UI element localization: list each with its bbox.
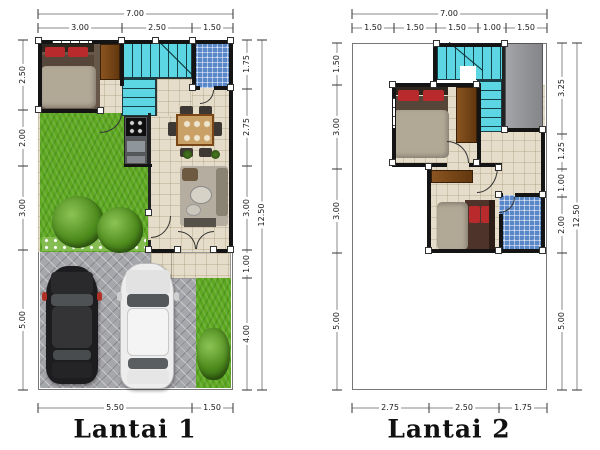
wall <box>427 165 431 253</box>
dim-label: 1.00 <box>243 253 251 275</box>
plan2-wardrobe-2 <box>431 170 473 183</box>
dim-label: 4.00 <box>243 323 251 345</box>
car-trunk <box>127 370 169 384</box>
plan2-stairs-opening <box>460 66 476 82</box>
dim-label: 1.25 <box>558 140 566 162</box>
column-marker <box>430 81 437 88</box>
plan1-plant-1 <box>183 150 192 159</box>
plan1-fridge <box>126 155 146 164</box>
dim-label: 2.00 <box>558 214 566 236</box>
column-marker <box>227 246 234 253</box>
dim-label: 3.25 <box>558 77 566 99</box>
dim-label: 1.50 <box>201 404 223 412</box>
plan1-garden-tree-2 <box>97 207 143 253</box>
column-marker <box>35 37 42 44</box>
plan1-bed-pillow-1 <box>45 47 65 57</box>
plan2-open-area <box>392 167 428 253</box>
column-marker <box>425 247 432 254</box>
column-marker <box>433 40 440 47</box>
plan1-stairs-side-run <box>122 78 156 116</box>
wall <box>192 40 196 88</box>
car-mirror-left <box>42 292 47 301</box>
column-marker <box>35 106 42 113</box>
dim-label: 3.00 <box>19 197 27 219</box>
column-marker <box>227 84 234 91</box>
dim-label: 1.50 <box>201 24 223 32</box>
car-rear-window <box>128 358 168 369</box>
plan2-bed2-pillow-2 <box>423 90 444 101</box>
plan1-car-white <box>120 263 174 389</box>
column-marker <box>539 191 546 198</box>
wall <box>433 47 437 83</box>
dim-label: 2.00 <box>19 127 27 149</box>
dim-label: 1.00 <box>558 172 566 194</box>
plan2-wardrobe-master <box>456 87 477 143</box>
wall <box>38 44 42 113</box>
column-marker <box>389 81 396 88</box>
dim-label: 2.50 <box>19 64 27 86</box>
column-marker <box>501 40 508 47</box>
column-marker <box>152 37 159 44</box>
dim-label: 1.75 <box>243 53 251 75</box>
wall <box>229 44 233 253</box>
plan1-plant-2 <box>211 150 220 159</box>
car-roof <box>127 308 169 356</box>
column-marker <box>174 246 181 253</box>
plan1-stove <box>126 118 146 136</box>
wall <box>427 249 545 253</box>
column-marker <box>539 247 546 254</box>
column-marker <box>473 159 480 166</box>
column-marker <box>495 247 502 254</box>
wall <box>392 163 447 167</box>
dim-label: 1.50 <box>333 53 341 75</box>
car-hood <box>126 270 170 294</box>
plan1-title: Lantai 1 <box>73 415 196 444</box>
wall <box>124 164 152 167</box>
dim-label: 7.00 <box>438 10 460 18</box>
plan1-car-black <box>46 266 98 384</box>
car-mirror-right <box>174 292 179 301</box>
wall <box>499 214 503 249</box>
column-marker <box>425 163 432 170</box>
dim-label: 12.50 <box>258 202 266 229</box>
dim-label: 5.00 <box>333 310 341 332</box>
plan1-bedroom-window <box>52 41 92 43</box>
plan1-armchair <box>182 168 198 181</box>
plan2-title: Lantai 2 <box>387 415 510 444</box>
dim-label: 12.50 <box>573 203 581 230</box>
plan2-roof-slab <box>505 43 543 130</box>
dim-label: 2.75 <box>243 116 251 138</box>
car-windshield <box>51 294 93 306</box>
plan1-wardrobe <box>100 44 120 80</box>
dim-label: 1.50 <box>404 24 426 32</box>
plan1-bathroom <box>192 42 233 88</box>
dim-label: 1.50 <box>446 24 468 32</box>
wall <box>433 43 505 47</box>
car-windshield <box>127 294 169 307</box>
dim-label: 5.00 <box>558 310 566 332</box>
plan2-bed3-blanket <box>437 202 468 250</box>
wall <box>120 40 124 86</box>
plan1-porch-step-line <box>171 252 172 279</box>
car-roof <box>52 306 92 348</box>
car-mirror-right <box>97 292 102 301</box>
plan2-bed3-pillow-1 <box>469 206 480 223</box>
column-marker <box>495 164 502 171</box>
column-marker <box>389 159 396 166</box>
column-marker <box>145 246 152 253</box>
wall <box>148 113 151 212</box>
plan1-coffee-table <box>190 186 212 204</box>
wall <box>477 83 481 167</box>
car-mirror-left <box>117 292 122 301</box>
column-marker <box>495 191 502 198</box>
dim-label: 7.00 <box>124 10 146 18</box>
plan1-dining-chair-4 <box>199 148 212 157</box>
plan1-garden-tree-1 <box>52 196 104 248</box>
car-trunk <box>52 362 92 378</box>
dim-label: 5.00 <box>19 309 27 331</box>
plan1-side-tree <box>197 328 230 380</box>
dim-label: 3.00 <box>333 116 341 138</box>
column-marker <box>501 126 508 133</box>
plan1-dining-table <box>176 114 214 146</box>
dim-label: 5.50 <box>104 404 126 412</box>
dim-label: 2.50 <box>146 24 168 32</box>
dim-label: 3.00 <box>243 197 251 219</box>
dim-label: 1.50 <box>362 24 384 32</box>
dim-label: 3.00 <box>69 24 91 32</box>
column-marker <box>473 81 480 88</box>
plan1-sofa <box>216 168 228 216</box>
column-marker <box>145 209 152 216</box>
plan1-bed-pillow-2 <box>68 47 88 57</box>
dim-label: 1.75 <box>512 404 534 412</box>
wall <box>502 43 505 132</box>
plan2-bed3-headboard <box>489 200 495 250</box>
floorplan-canvas: 7.00 3.00 2.50 1.50 2.50 2.00 3.00 5.00 … <box>0 0 600 450</box>
column-marker <box>118 37 125 44</box>
wall <box>38 109 102 113</box>
column-marker <box>189 84 196 91</box>
column-marker <box>227 37 234 44</box>
dim-label: 3.00 <box>333 200 341 222</box>
dim-label: 2.50 <box>453 404 475 412</box>
plan1-ottoman <box>186 204 201 216</box>
plan1-bed-blanket <box>41 66 96 108</box>
dim-label: 1.50 <box>515 24 537 32</box>
column-marker <box>97 107 104 114</box>
column-marker <box>210 246 217 253</box>
dim-label: 1.00 <box>481 24 503 32</box>
column-marker <box>539 126 546 133</box>
plan2-bed2-blanket <box>393 110 449 158</box>
car-hood <box>51 272 93 294</box>
column-marker <box>189 37 196 44</box>
plan2-bed2-pillow-1 <box>398 90 419 101</box>
plan1-tv-console <box>184 218 216 227</box>
plan1-stairs-upper-run <box>122 42 192 78</box>
dim-label: 2.75 <box>379 404 401 412</box>
plan2-bedroom-window <box>393 98 395 128</box>
plan1-sink <box>126 140 146 153</box>
plan1-dining-chair-6 <box>213 122 222 136</box>
car-rear-window <box>53 350 91 360</box>
